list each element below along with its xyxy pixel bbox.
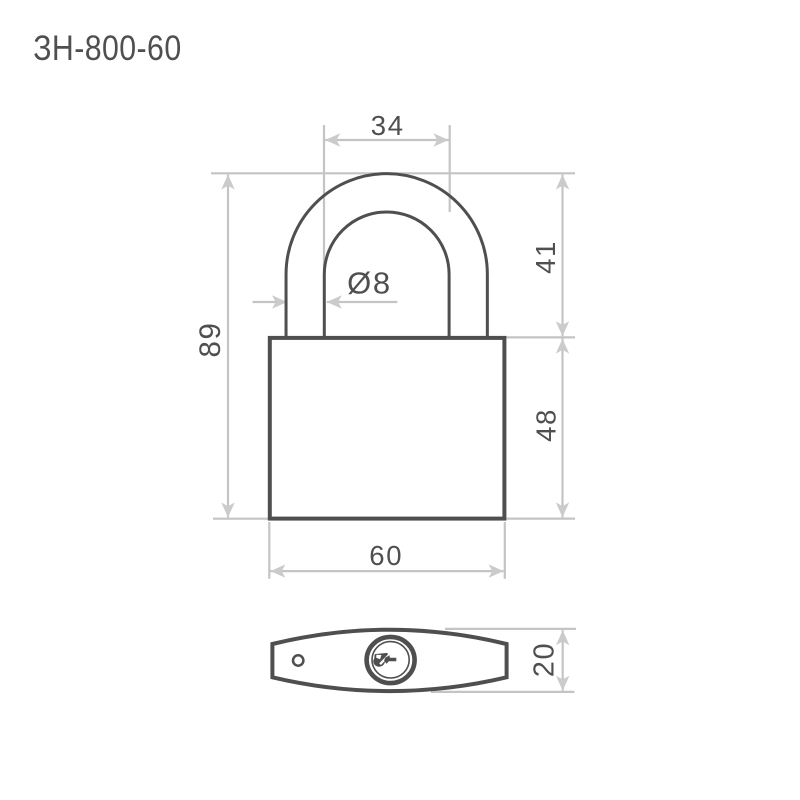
svg-text:34: 34 (371, 110, 405, 141)
svg-text:60: 60 (369, 540, 403, 571)
svg-text:Ø8: Ø8 (347, 266, 392, 301)
svg-text:20: 20 (529, 642, 561, 677)
svg-text:89: 89 (194, 321, 227, 357)
svg-text:ЗН-800-60: ЗН-800-60 (33, 28, 181, 68)
svg-text:48: 48 (531, 408, 562, 442)
svg-text:41: 41 (530, 240, 561, 274)
